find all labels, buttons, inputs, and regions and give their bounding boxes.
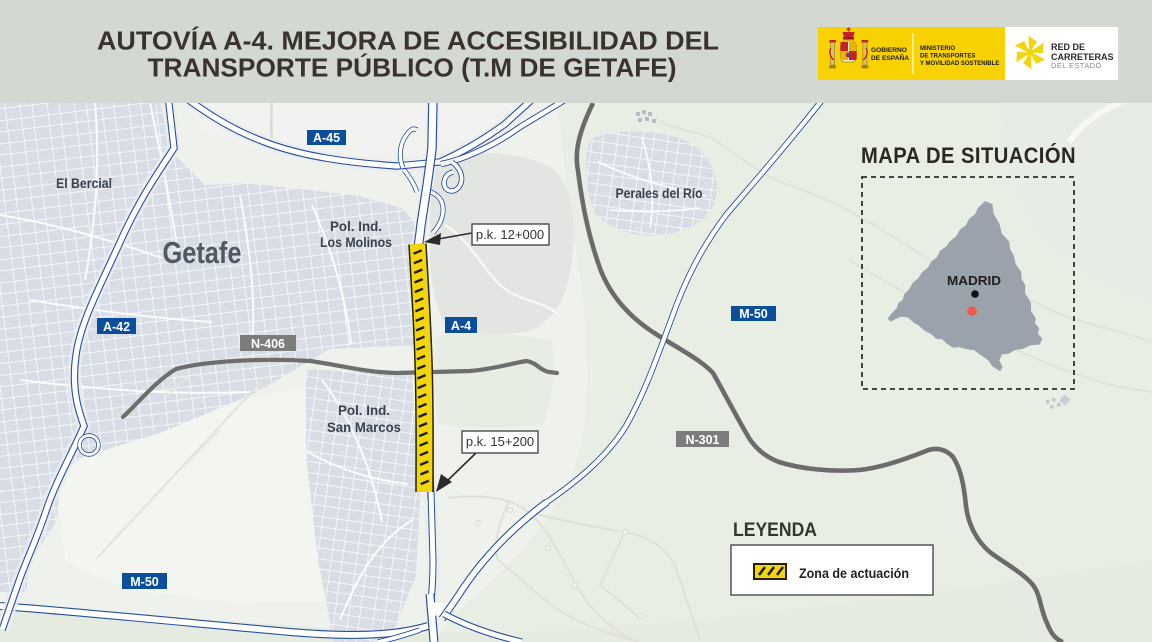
svg-text:DE ESPAÑA: DE ESPAÑA	[871, 53, 909, 62]
svg-text:Los Molinos: Los Molinos	[320, 234, 392, 250]
svg-text:AUTOVÍA A-4. MEJORA DE ACCESIB: AUTOVÍA A-4. MEJORA DE ACCESIBILIDAD DEL	[97, 27, 719, 56]
svg-text:p.k. 15+200: p.k. 15+200	[466, 434, 534, 449]
svg-text:MAPA DE SITUACIÓN: MAPA DE SITUACIÓN	[861, 143, 1076, 168]
svg-text:Getafe: Getafe	[163, 235, 242, 270]
svg-text:GOBIERNO: GOBIERNO	[871, 47, 907, 54]
svg-text:MADRID: MADRID	[947, 274, 1001, 288]
svg-text:N-301: N-301	[685, 433, 719, 447]
svg-text:TRANSPORTE PÚBLICO (T.M DE GET: TRANSPORTE PÚBLICO (T.M DE GETAFE)	[148, 53, 677, 83]
svg-text:Y MOVILIDAD SOSTENIBLE: Y MOVILIDAD SOSTENIBLE	[920, 61, 999, 67]
svg-text:p.k. 12+000: p.k. 12+000	[476, 227, 544, 242]
svg-text:LEYENDA: LEYENDA	[733, 520, 817, 541]
svg-text:A-42: A-42	[103, 320, 130, 334]
svg-text:RED DE: RED DE	[1051, 42, 1085, 52]
svg-text:N-406: N-406	[251, 337, 285, 351]
svg-text:M-50: M-50	[739, 307, 768, 321]
svg-text:MINISTERIO: MINISTERIO	[920, 46, 955, 52]
svg-text:San Marcos: San Marcos	[327, 419, 401, 435]
svg-text:DE TRANSPORTES: DE TRANSPORTES	[920, 54, 975, 60]
svg-text:Perales del Río: Perales del Río	[616, 186, 703, 201]
svg-text:Pol. Ind.: Pol. Ind.	[330, 218, 382, 234]
svg-text:A-45: A-45	[313, 131, 340, 145]
svg-text:DEL ESTADO: DEL ESTADO	[1051, 61, 1102, 70]
svg-text:Pol. Ind.: Pol. Ind.	[338, 402, 390, 418]
svg-text:Zona de actuación: Zona de actuación	[799, 566, 909, 581]
svg-text:M-50: M-50	[130, 575, 159, 589]
svg-text:A-4: A-4	[451, 319, 471, 333]
svg-text:El Bercial: El Bercial	[56, 176, 112, 191]
